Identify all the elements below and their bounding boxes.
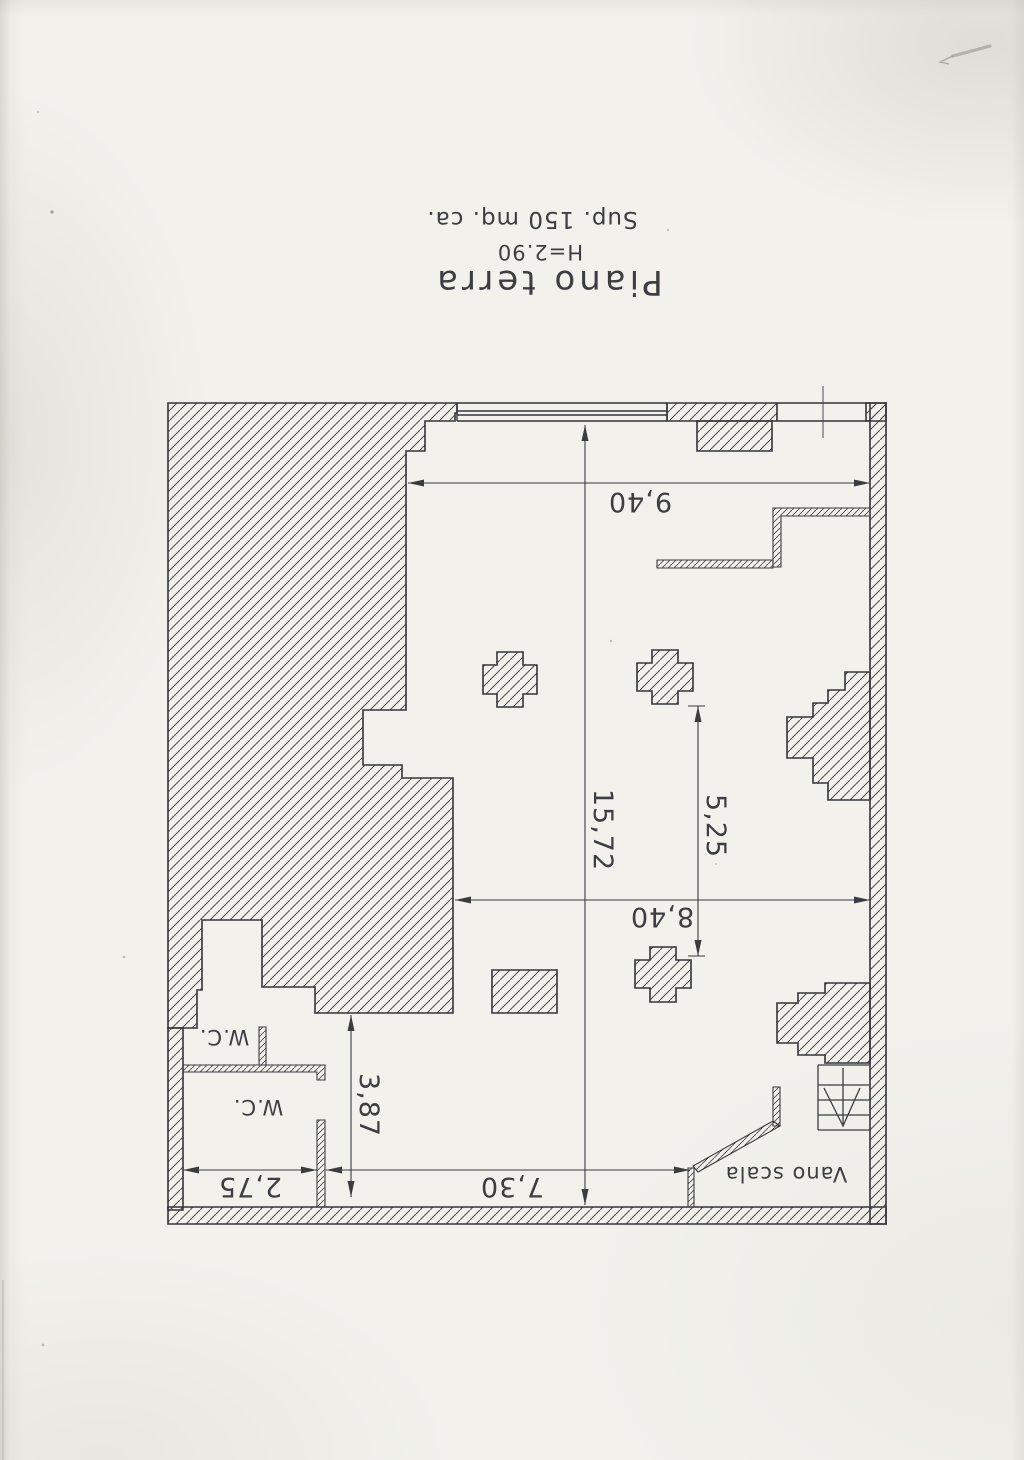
cross-column-1 bbox=[483, 652, 537, 707]
dim-hall-width-label: 7,30 bbox=[480, 1171, 544, 1202]
stepped-pier-lower bbox=[777, 983, 870, 1063]
doorway-pier bbox=[492, 970, 557, 1013]
dimension-overall-depth: 15,72 bbox=[582, 425, 619, 1205]
pen-mark bbox=[953, 46, 990, 56]
stepped-pier-upper bbox=[787, 672, 870, 800]
dim-columns-span-label: 5,25 bbox=[700, 794, 731, 858]
height-note: H=2.90 bbox=[497, 240, 583, 264]
bottom-wall bbox=[168, 1207, 886, 1224]
cross-column-2 bbox=[637, 650, 693, 704]
dim-top-width-label: 9,40 bbox=[608, 486, 672, 517]
dimension-hall-width: 7,30 bbox=[326, 1167, 690, 1203]
dimension-main-width: 8,40 bbox=[455, 897, 870, 933]
wc-divider-stub bbox=[259, 1027, 266, 1065]
room-labels: W.C. W.C. Vano scala bbox=[199, 1025, 847, 1186]
top-wall-pier bbox=[667, 403, 777, 421]
pen-mark-hook bbox=[940, 56, 953, 64]
dim-wc-width-label: 2,75 bbox=[218, 1171, 282, 1202]
scanned-floor-plan-sheet: Sup. 150 mq. ca. H=2.90 Piano terra bbox=[0, 0, 1024, 1460]
stair-hall-wall bbox=[773, 1087, 780, 1126]
upper-right-ledge-wall bbox=[773, 508, 870, 567]
right-wall bbox=[870, 403, 886, 1224]
wc-lower-label: W.C. bbox=[233, 1095, 283, 1119]
staircase bbox=[818, 1065, 870, 1130]
plan-title: Piano terra bbox=[433, 262, 663, 302]
left-wall bbox=[168, 1028, 183, 1210]
upper-right-ledge-wall-2 bbox=[657, 560, 773, 568]
top-right-corner-pier bbox=[866, 403, 886, 421]
top-window bbox=[457, 403, 667, 421]
dim-main-width-label: 8,40 bbox=[630, 901, 694, 932]
area-note: Sup. 150 mq. ca. bbox=[426, 206, 637, 232]
wc-partition bbox=[317, 1120, 325, 1207]
title-block: Sup. 150 mq. ca. H=2.90 Piano terra bbox=[426, 206, 662, 302]
stair-hall-stub bbox=[688, 1168, 694, 1207]
stair-direction-arrow bbox=[824, 1068, 860, 1126]
top-wall-pier-foot bbox=[697, 421, 772, 451]
dim-overall-depth-label: 15,72 bbox=[587, 789, 618, 871]
cross-column-3 bbox=[635, 947, 691, 1002]
wc-top-wall bbox=[183, 1065, 325, 1080]
dimension-wc-width: 2,75 bbox=[183, 1167, 317, 1203]
stair-hall-label: Vano scala bbox=[725, 1162, 848, 1186]
massive-wall-block bbox=[168, 403, 457, 1028]
wc-upper-label: W.C. bbox=[199, 1025, 249, 1049]
dim-service-depth-label: 3,87 bbox=[353, 1073, 384, 1137]
